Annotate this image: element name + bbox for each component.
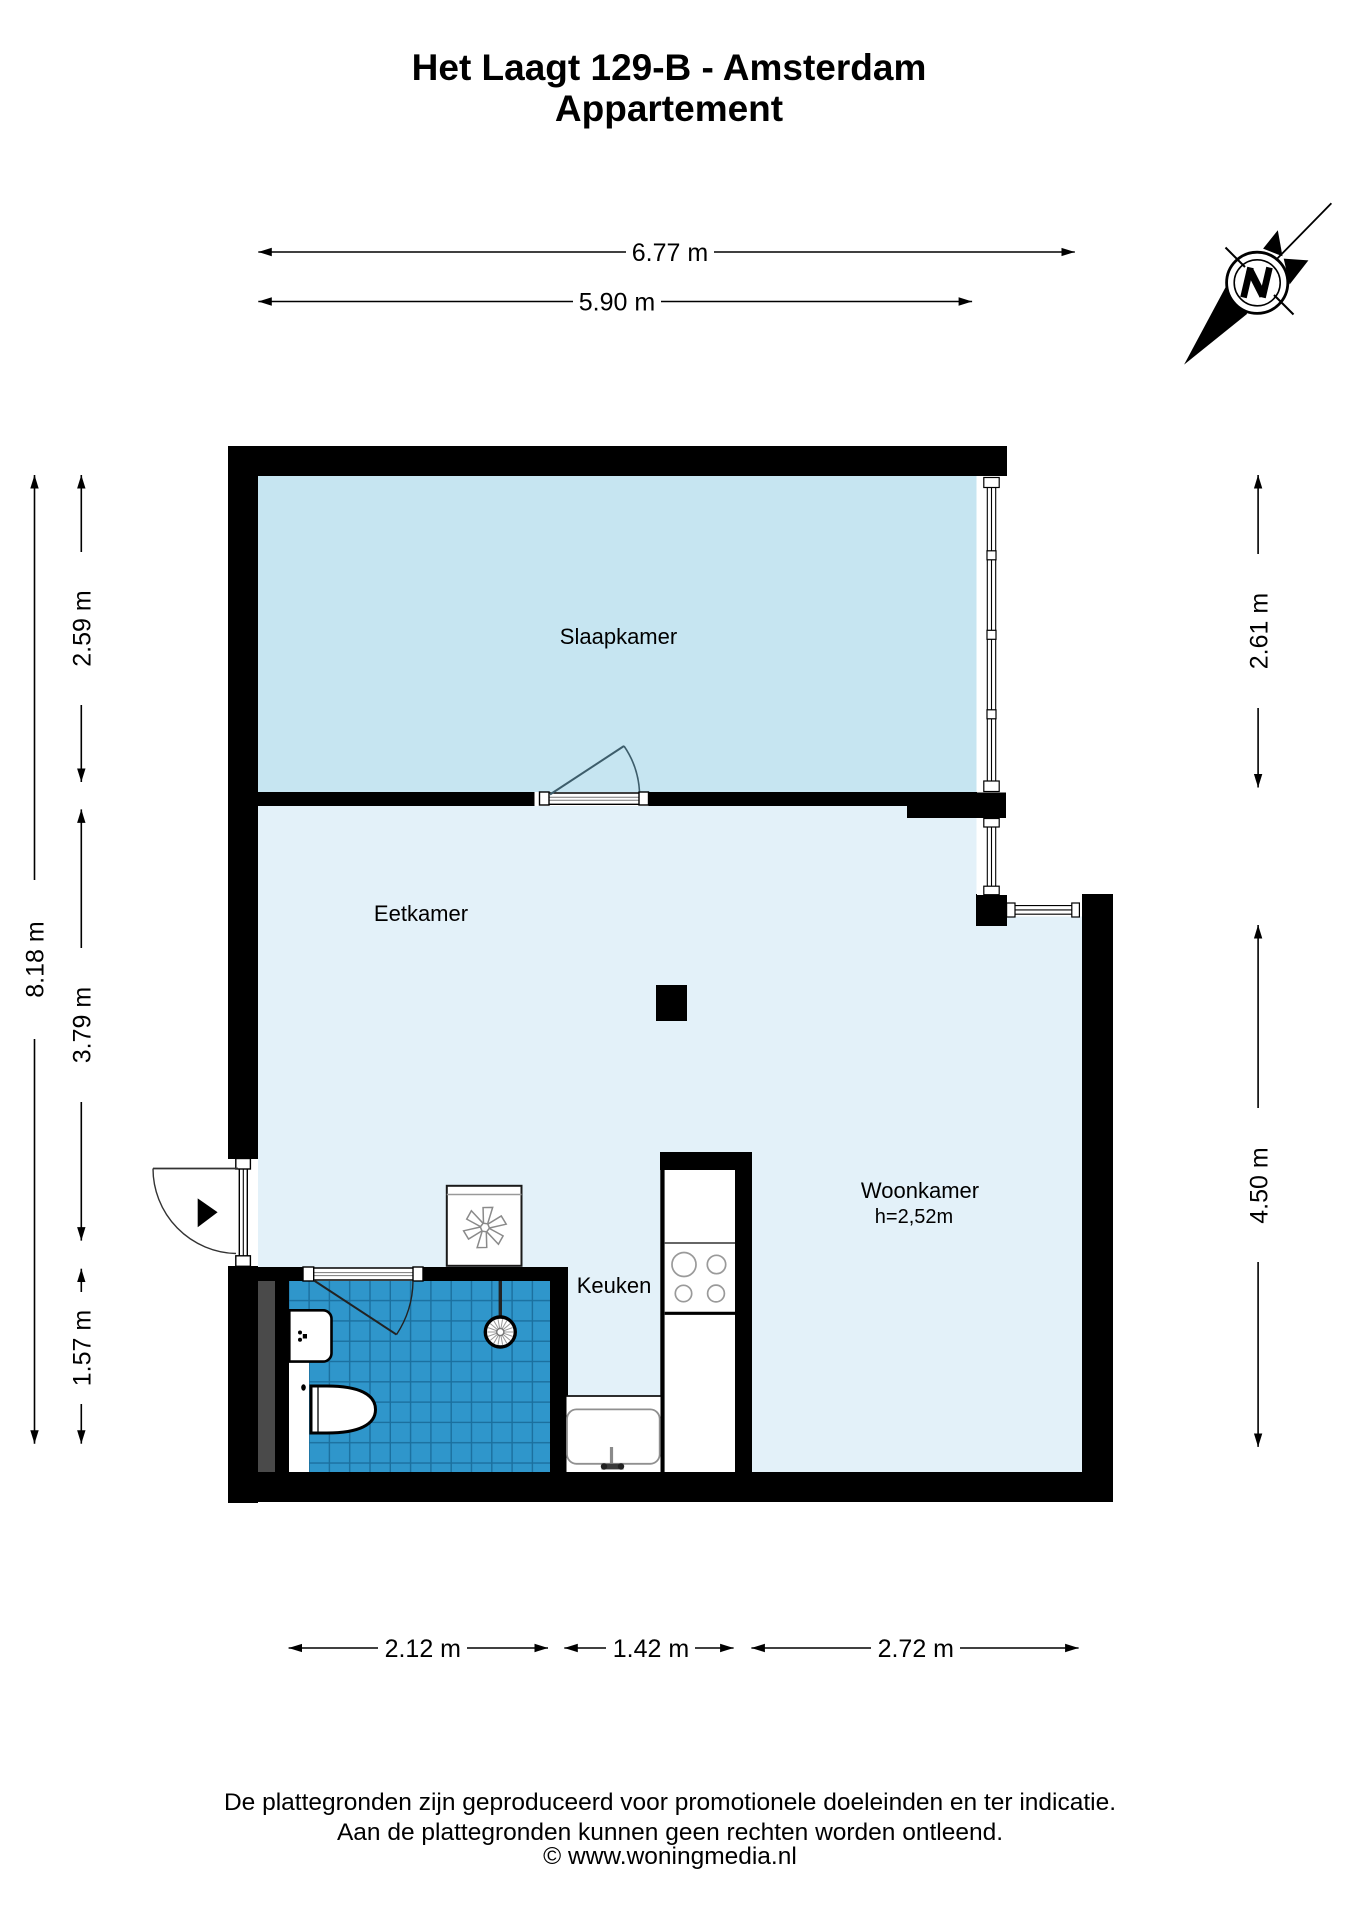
svg-text:2.12 m: 2.12 m: [385, 1635, 461, 1663]
svg-text:De plattegronden zijn geproduc: De plattegronden zijn geproduceerd voor …: [224, 1789, 1116, 1816]
svg-text:1.42 m: 1.42 m: [613, 1635, 689, 1663]
svg-text:3.79 m: 3.79 m: [69, 987, 97, 1063]
svg-text:6.77 m: 6.77 m: [632, 239, 708, 267]
svg-text:© www.woningmedia.nl: © www.woningmedia.nl: [543, 1843, 797, 1870]
svg-text:Appartement: Appartement: [555, 88, 783, 129]
svg-text:Slaapkamer: Slaapkamer: [560, 624, 677, 649]
svg-text:2.72 m: 2.72 m: [878, 1635, 954, 1663]
svg-text:Aan de plattegronden kunnen ge: Aan de plattegronden kunnen geen rechten…: [337, 1819, 1003, 1846]
svg-text:h=2,52m: h=2,52m: [875, 1206, 953, 1228]
svg-text:2.61 m: 2.61 m: [1246, 593, 1274, 669]
svg-text:Keuken: Keuken: [577, 1273, 652, 1298]
svg-text:1.57 m: 1.57 m: [69, 1310, 97, 1386]
svg-text:5.90 m: 5.90 m: [579, 289, 655, 317]
svg-text:Eetkamer: Eetkamer: [374, 901, 468, 926]
svg-text:8.18 m: 8.18 m: [22, 921, 50, 997]
svg-text:4.50 m: 4.50 m: [1246, 1147, 1274, 1223]
svg-text:Woonkamer: Woonkamer: [861, 1178, 979, 1203]
svg-text:2.59 m: 2.59 m: [69, 590, 97, 666]
svg-text:Het Laagt 129-B - Amsterdam: Het Laagt 129-B - Amsterdam: [412, 47, 927, 88]
